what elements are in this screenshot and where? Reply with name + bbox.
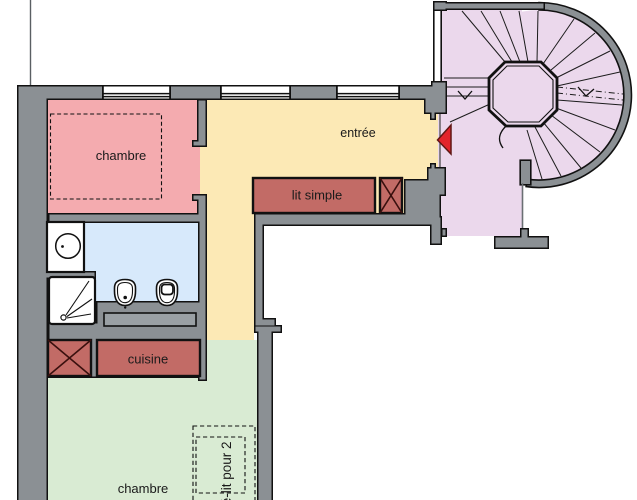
svg-text:lit simple: lit simple: [292, 188, 343, 203]
svg-text:cuisine: cuisine: [128, 352, 168, 367]
svg-text:chambre: chambre: [96, 148, 147, 163]
svg-text:canapé-lit pour 2: canapé-lit pour 2: [219, 441, 234, 500]
svg-text:entrée: entrée: [340, 126, 375, 140]
svg-text:chambre: chambre: [118, 481, 169, 496]
